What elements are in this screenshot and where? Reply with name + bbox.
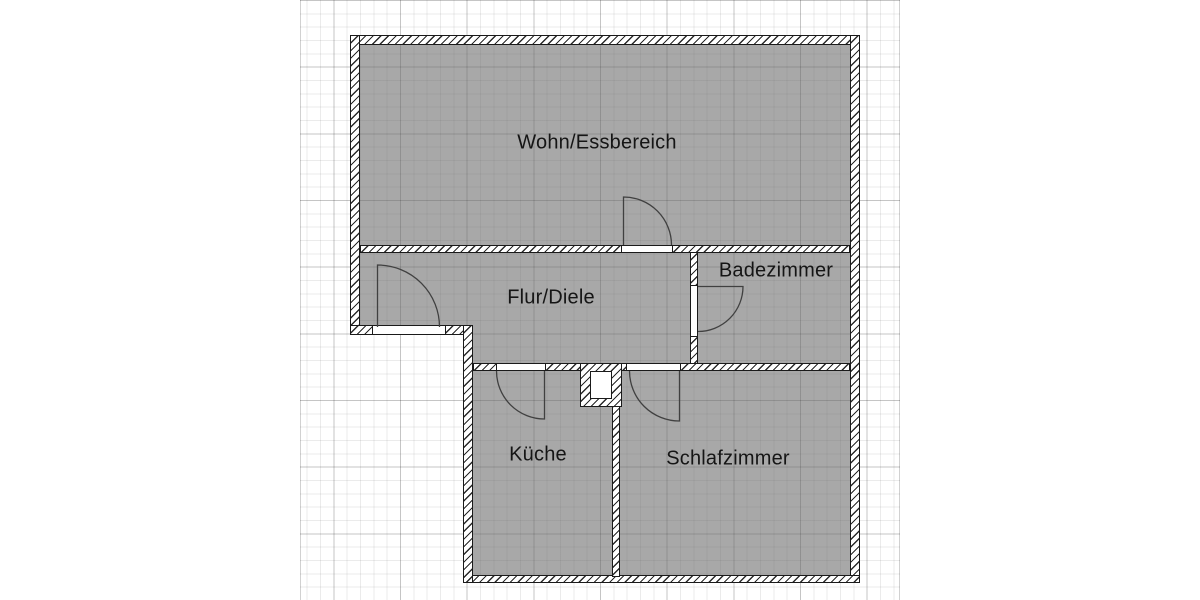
floor-plan-canvas[interactable]: Wohn/Essbereich Flur/Diele Badezimmer Kü… (0, 0, 1200, 600)
door-swing-schlafzimmer[interactable] (630, 371, 680, 421)
room-label-flur-diele[interactable]: Flur/Diele (507, 287, 595, 310)
door-swing-entrance[interactable] (378, 265, 440, 327)
door-swing-kueche[interactable] (497, 371, 545, 419)
room-label-kueche[interactable]: Küche (509, 444, 567, 467)
room-label-wohn-essbereich[interactable]: Wohn/Essbereich (517, 132, 676, 155)
room-label-schlafzimmer[interactable]: Schlafzimmer (666, 448, 790, 471)
door-swing-badezimmer[interactable] (698, 287, 743, 332)
room-label-badezimmer[interactable]: Badezimmer (719, 260, 833, 283)
door-swing-wohn[interactable] (624, 197, 672, 245)
door-swings-layer (0, 0, 1200, 600)
